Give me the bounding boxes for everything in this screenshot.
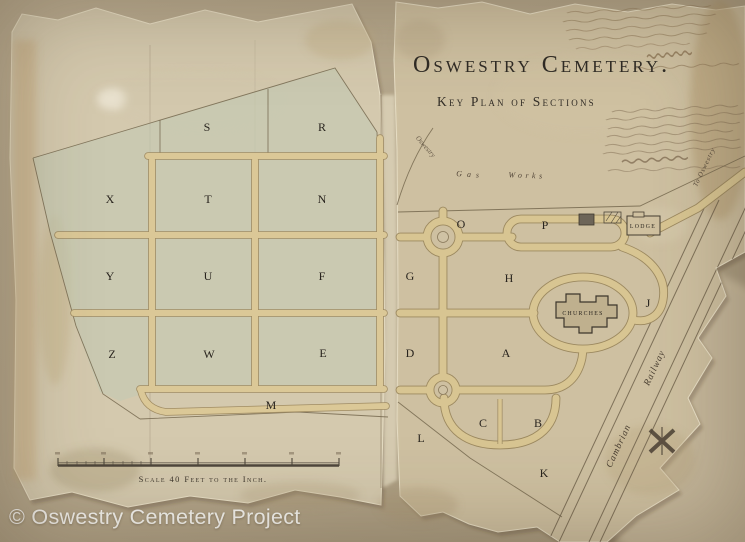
- section-label-g: G: [406, 269, 415, 283]
- scanned-map-photo: Oswestry Cemetery. Key Plan of Sections …: [0, 0, 745, 542]
- section-label-w: W: [203, 347, 215, 361]
- watermark-caption: © Oswestry Cemetery Project: [9, 505, 301, 530]
- map-subtitle: Key Plan of Sections: [437, 94, 596, 109]
- section-label-f: F: [319, 269, 326, 283]
- section-label-s: S: [204, 120, 211, 134]
- churches-label: Churches: [562, 311, 603, 317]
- gas-works-label-2: Works: [508, 170, 546, 180]
- scale-label: Scale 40 Feet to the Inch.: [139, 474, 268, 484]
- section-label-n: N: [318, 192, 327, 206]
- section-label-r: R: [318, 120, 326, 134]
- section-label-u: U: [204, 269, 213, 283]
- section-label-k: K: [540, 466, 549, 480]
- section-label-o: O: [457, 217, 466, 231]
- section-label-j: J: [646, 296, 651, 310]
- section-label-y: Y: [106, 269, 115, 283]
- section-label-c: C: [479, 416, 487, 430]
- map-title: Oswestry Cemetery.: [413, 52, 670, 78]
- section-label-b: B: [534, 416, 542, 430]
- cemetery-plan-drawing: Oswestry Cemetery. Key Plan of Sections …: [0, 0, 745, 542]
- section-label-d: D: [406, 346, 415, 360]
- section-label-p: P: [542, 218, 549, 232]
- section-label-a: A: [502, 346, 511, 360]
- section-label-t: T: [204, 192, 212, 206]
- section-label-l: L: [417, 431, 424, 445]
- section-label-h: H: [505, 271, 514, 285]
- section-label-e: E: [319, 346, 326, 360]
- section-label-m: M: [266, 398, 277, 412]
- section-label-x: X: [106, 192, 115, 206]
- section-label-z: Z: [108, 347, 115, 361]
- lodge-label: Lodge: [630, 224, 656, 230]
